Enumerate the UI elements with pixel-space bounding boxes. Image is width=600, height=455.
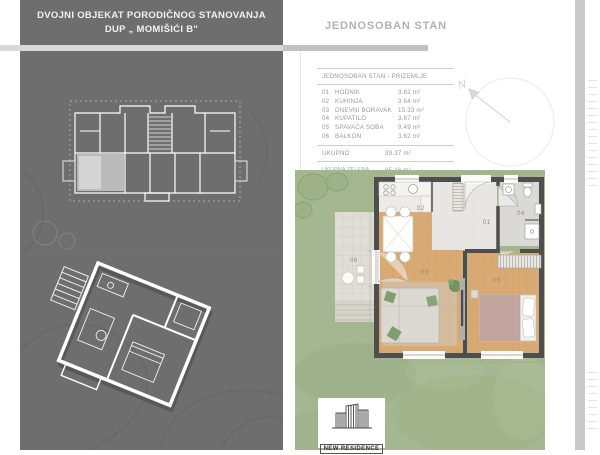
sink-icon — [409, 185, 418, 194]
table-row: 01 HODNIK 3.62 m² — [322, 89, 454, 98]
dark-panel-graphics — [20, 51, 283, 450]
label-spavaca-soba: 05 — [493, 278, 501, 284]
dark-presentation-panel — [20, 51, 283, 450]
washing-machine — [503, 184, 514, 195]
margin-annotations — [588, 372, 597, 434]
tv — [461, 290, 463, 326]
table-body: 01 HODNIK 3.62 m² 02 KUHINJA 3.64 m² 03 … — [317, 85, 454, 145]
wardrobe — [498, 255, 541, 268]
building-icon — [330, 402, 374, 432]
table-header: JEDNOSOBAN STAN - PRIZEMLJE — [317, 69, 454, 84]
table-total-row: UKUPNO 39.37 m² — [317, 146, 454, 161]
terrace-stool — [357, 266, 364, 273]
table-row: 02 KUHINJA 3.64 m² — [322, 98, 454, 107]
apartment-axonometric-view — [26, 252, 212, 419]
nightstand — [471, 290, 478, 298]
right-edge-bar — [575, 0, 585, 450]
entry-porch — [145, 193, 169, 201]
table-row: 06 BALKON 3.62 m² — [322, 133, 454, 142]
bed-blanket — [480, 295, 520, 341]
label-balkon: 06 — [350, 258, 358, 264]
toilet — [524, 187, 532, 197]
margin-annotations — [588, 80, 597, 188]
toilet-tank — [523, 183, 532, 187]
logo-text: NEW RESIDENCE — [320, 444, 384, 454]
building-floorplan-outline — [63, 101, 247, 201]
sheet-title-underline — [283, 45, 428, 51]
project-title-line2: DUP „ MOMIŠIĆI B" — [20, 23, 283, 37]
layout-guide-line — [300, 51, 301, 170]
bath-sink — [535, 204, 541, 214]
table-row: 05 SPAVAĆA SOBA 9.49 m² — [322, 124, 454, 133]
entry-closet-hatch — [453, 183, 463, 211]
pillow — [426, 295, 438, 307]
pillow — [522, 298, 535, 317]
table-row: 03 DNEVNI BORAVAK 15.33 m² — [322, 107, 454, 116]
balcony-right — [235, 161, 247, 181]
label-hodnik: 01 — [483, 220, 491, 226]
project-title-block: DVOJNI OBJEKAT PORODIČNOG STANOVANJA DUP… — [20, 0, 283, 45]
balcony-left — [63, 161, 75, 181]
company-logo: NEW RESIDENCE — [318, 398, 385, 448]
sheet-title: JEDNOSOBAN STAN — [325, 20, 447, 32]
page: { "left_panel": { "title_line1": "DVOJNI… — [0, 0, 600, 450]
table-row: 04 KUPATILO 3.67 m² — [322, 115, 454, 124]
terrace-steps — [335, 300, 374, 322]
north-letter: N — [457, 78, 468, 92]
terrace-stool — [357, 276, 364, 283]
terrace-table — [342, 272, 354, 284]
terrace — [335, 212, 374, 322]
project-title-line1: DVOJNI OBJEKAT PORODIČNOG STANOVANJA — [20, 9, 283, 23]
living-room-furniture — [381, 278, 465, 346]
stair-hatch — [149, 117, 171, 149]
label-kuhinja: 02 — [417, 206, 425, 212]
faint-trees — [33, 221, 75, 249]
label-dnevni-boravak: 03 — [421, 270, 429, 276]
north-arrow: N — [452, 58, 572, 170]
pillow — [522, 318, 535, 337]
room-area-table: JEDNOSOBAN STAN - PRIZEMLJE 01 HODNIK 3.… — [317, 68, 454, 185]
shower — [525, 224, 539, 239]
label-kupatilo: 04 — [517, 211, 525, 217]
